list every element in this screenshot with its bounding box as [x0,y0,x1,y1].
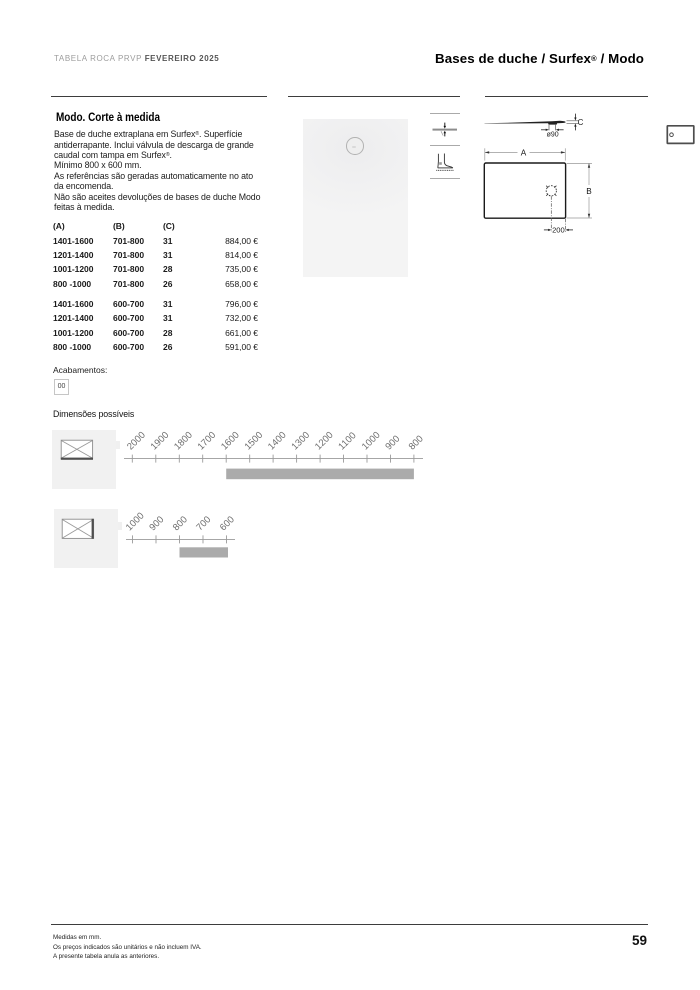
svg-text:1200: 1200 [313,430,336,453]
svg-text:1700: 1700 [196,430,219,453]
svg-text:ø90: ø90 [547,131,559,138]
svg-text:900: 900 [383,433,402,452]
svg-text:200: 200 [552,226,565,235]
svg-text:1400: 1400 [266,430,289,453]
svg-text:1100: 1100 [336,430,358,452]
svg-text:1600: 1600 [219,430,242,453]
svg-text:1500: 1500 [243,430,266,453]
svg-text:800: 800 [171,514,190,533]
svg-text:1000: 1000 [360,430,383,453]
svg-text:B: B [586,187,592,196]
svg-text:1000: 1000 [124,510,147,533]
svg-text:1800: 1800 [172,430,195,453]
svg-text:1300: 1300 [289,430,312,453]
svg-text:2000: 2000 [125,430,148,453]
svg-text:600: 600 [218,514,237,533]
svg-text:C: C [578,118,584,127]
svg-text:900: 900 [147,514,166,533]
svg-text:A: A [521,149,527,158]
svg-text:700: 700 [194,514,213,533]
svg-text:1900: 1900 [149,430,172,453]
svg-text:800: 800 [407,433,426,452]
